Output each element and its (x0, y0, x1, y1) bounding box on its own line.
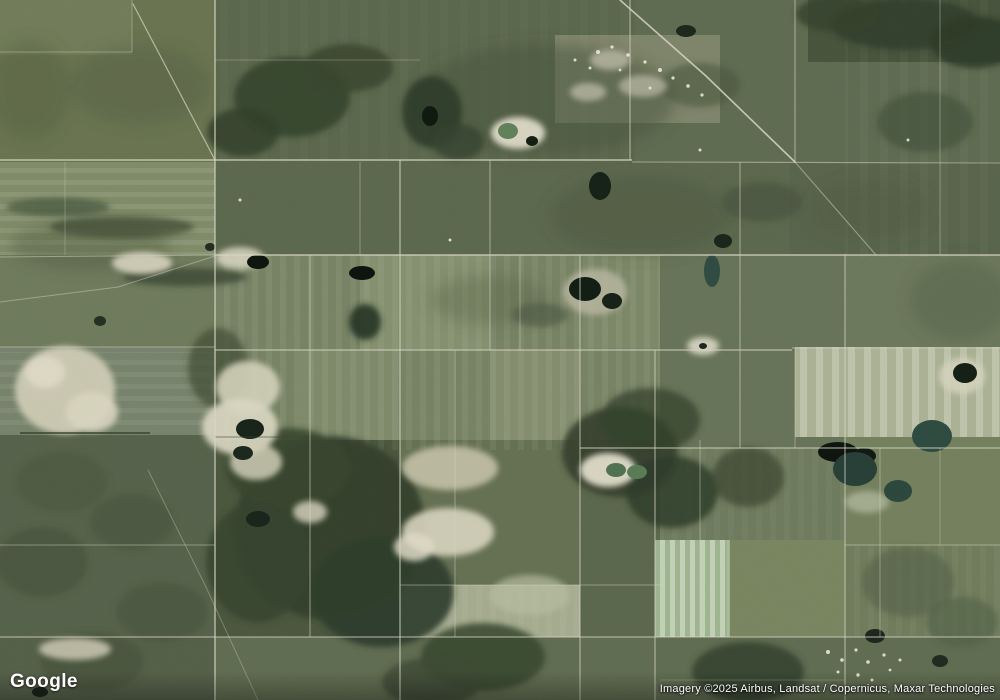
attribution-text: Imagery ©2025 Airbus, Landsat / Copernic… (660, 683, 995, 695)
google-logo[interactable]: Google (10, 671, 78, 693)
map-viewport[interactable]: Google Imagery ©2025 Airbus, Landsat / C… (0, 0, 1000, 700)
satellite-imagery[interactable] (0, 0, 1000, 700)
photo-grain-overlay (0, 0, 1000, 700)
